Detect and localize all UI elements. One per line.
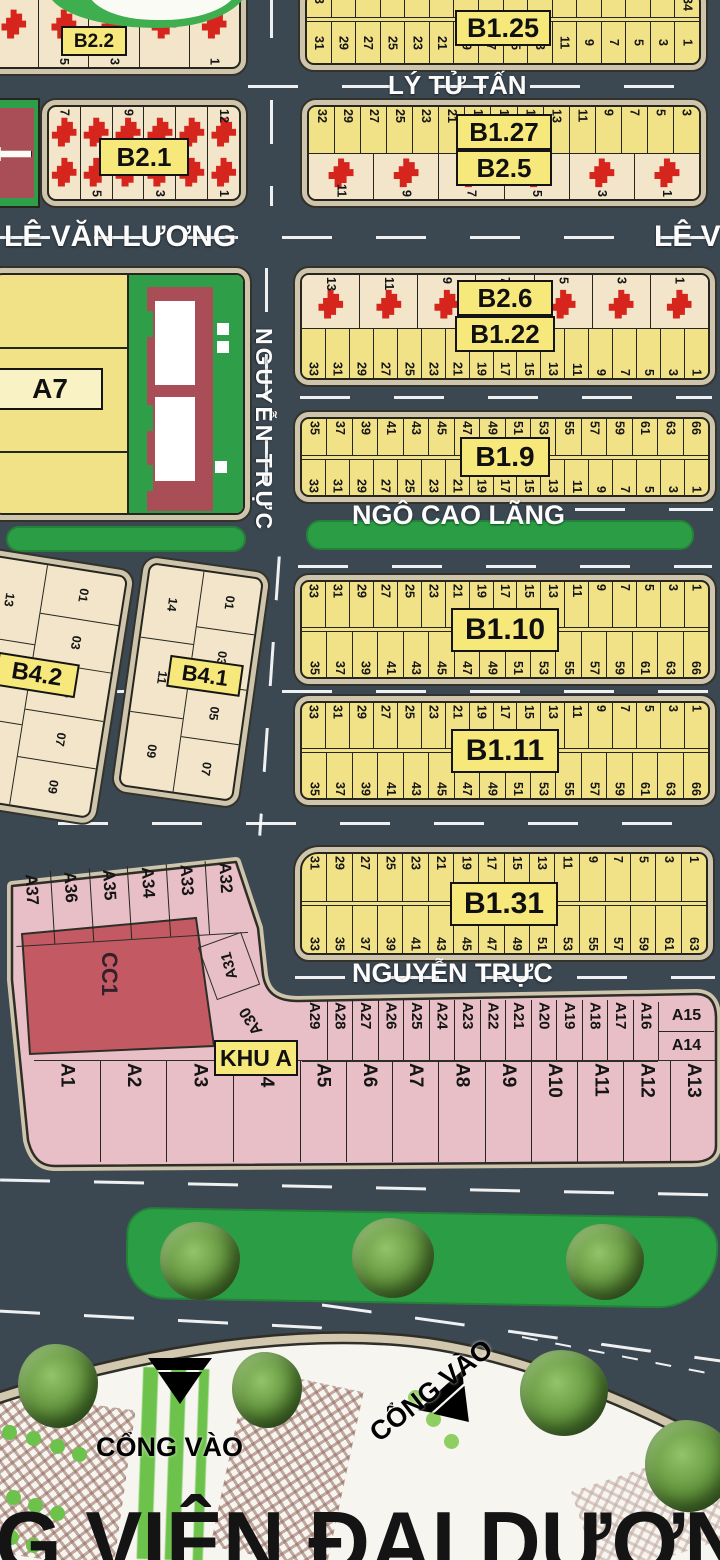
- lot-1: 1: [207, 153, 239, 199]
- lot-7: 7: [605, 854, 630, 901]
- lot-21: 21: [429, 22, 454, 63]
- lot-1: 1: [684, 329, 708, 378]
- lot-a5: A5: [300, 1061, 346, 1162]
- lot-35: 35: [302, 753, 326, 798]
- lot-39: 39: [352, 753, 377, 798]
- lot-1: 1: [684, 582, 708, 627]
- lot-35: 35: [326, 906, 351, 953]
- building-icon: [667, 290, 692, 319]
- block-label-a7: A7: [0, 368, 103, 410]
- street-ngo-cao-lang: NGÔ CAO LÃNG: [352, 500, 565, 531]
- lot-a7: A7: [392, 1061, 438, 1162]
- lot-9: 9: [588, 329, 612, 378]
- lot-41: 41: [402, 906, 427, 953]
- lot-9: 9: [576, 22, 601, 63]
- site-plan-map: 531 B2.2 334 312927252321191715131197531…: [0, 0, 720, 1560]
- lot-25: 25: [377, 854, 402, 901]
- lot-23: 23: [402, 854, 427, 901]
- lot-a22: A22: [480, 1000, 506, 1061]
- a7-white-square: [217, 341, 229, 353]
- lot-31: 31: [307, 22, 331, 63]
- lot: [380, 0, 405, 17]
- lot-7: 7: [612, 460, 636, 496]
- lot-55: 55: [555, 753, 580, 798]
- khu-a-side-row: A29A28A27A26A25A24A23A22A21A20A19A18A17A…: [302, 1000, 658, 1062]
- lot-25: 25: [397, 582, 421, 627]
- lot-23: 23: [404, 22, 429, 63]
- building-icon: [52, 158, 77, 187]
- lot-5: 5: [647, 107, 673, 153]
- lot-25: 25: [386, 107, 412, 153]
- lot-01: 01: [196, 572, 261, 634]
- block-b2-6-b1-22: 131197531 33312927252321191715131197531 …: [293, 266, 717, 387]
- lot-23: 23: [421, 582, 445, 627]
- lot-55: 55: [579, 906, 604, 953]
- lot: [0, 0, 38, 67]
- lot: [49, 153, 80, 199]
- lot-33: 33: [302, 906, 326, 953]
- street-ly-tu-tan: LÝ TỬ TẤN: [388, 70, 527, 101]
- lot-9: 9: [588, 460, 612, 496]
- lot-5: 5: [636, 703, 660, 748]
- lot-5: 5: [636, 329, 660, 378]
- lot-35: 35: [302, 632, 326, 677]
- lot-25: 25: [397, 460, 421, 496]
- lot-27: 27: [352, 854, 377, 901]
- a7-green-area: [127, 275, 243, 513]
- lot-a28: A28: [327, 1000, 353, 1061]
- lot-a21: A21: [505, 1000, 531, 1061]
- lot-61: 61: [632, 753, 657, 798]
- lot-25: 25: [397, 329, 421, 378]
- building-icon: [211, 158, 236, 187]
- lot-33: 33: [302, 582, 325, 627]
- block-label-b1-27: B1.27: [456, 114, 552, 150]
- khu-a-top-row: A37A36A35A34A33A32: [12, 859, 248, 947]
- lot-33: 33: [302, 460, 325, 496]
- lot-a26: A26: [378, 1000, 404, 1061]
- block-b1-11: 33312927252321191715131197531 3537394143…: [293, 694, 717, 807]
- lot-a11: A11: [577, 1061, 623, 1162]
- lot-41: 41: [377, 419, 402, 455]
- lot-3: 3: [673, 107, 699, 153]
- lot-59: 59: [630, 906, 655, 953]
- lot-43: 43: [403, 632, 428, 677]
- block-a7: A7: [0, 266, 252, 522]
- lot-3: 3: [655, 854, 680, 901]
- lot-61: 61: [655, 906, 680, 953]
- building-icon: [609, 290, 634, 319]
- lot-29: 29: [349, 460, 373, 496]
- lot-13: 13: [302, 275, 359, 328]
- lot-5: 5: [625, 22, 650, 63]
- block-label-b2-6: B2.6: [457, 280, 553, 316]
- lot-3: 3: [660, 703, 684, 748]
- building-icon: [1, 10, 26, 39]
- lot: [552, 0, 577, 17]
- lot-9: 9: [595, 107, 621, 153]
- lot-9: 9: [588, 582, 612, 627]
- block-label-b1-10: B1.10: [451, 608, 559, 652]
- lot-43: 43: [403, 753, 428, 798]
- building-icon: [551, 290, 576, 319]
- lot-a1: A1: [34, 1061, 100, 1162]
- lot-57: 57: [605, 906, 630, 953]
- block-b1-25: 334 312927252321191715131197531 B1.25: [298, 0, 708, 72]
- lot-a23: A23: [454, 1000, 480, 1061]
- lot-27: 27: [360, 107, 386, 153]
- lot-45: 45: [428, 632, 453, 677]
- lot-33: 33: [302, 703, 325, 748]
- lot-1: 1: [674, 22, 699, 63]
- building-icon: [376, 290, 401, 319]
- lot-3: 3: [569, 154, 634, 200]
- a7-green-notch: [141, 405, 153, 431]
- lot: [355, 0, 380, 17]
- lot-1: 1: [681, 854, 706, 901]
- lot-37: 37: [326, 419, 351, 455]
- street-le-van-luong: LÊ VĂN LƯƠNG: [4, 220, 236, 254]
- lot-29: 29: [349, 329, 373, 378]
- lot-9: 9: [579, 854, 604, 901]
- lot: [331, 0, 356, 17]
- lot-7: 7: [601, 22, 626, 63]
- lot-5: 5: [630, 854, 655, 901]
- lot-31: 31: [325, 582, 349, 627]
- lot-a32: A32: [205, 859, 248, 934]
- lot-31: 31: [302, 854, 326, 901]
- park-name: CÔNG VIÊN ĐẠI DƯƠNG: [0, 1492, 720, 1560]
- lot-27: 27: [355, 22, 380, 63]
- lot-27: 27: [373, 582, 397, 627]
- block-b1-27: 32292725232119171513119753 1197531 B1.27…: [300, 98, 708, 208]
- lot-63: 63: [657, 753, 682, 798]
- lot: [576, 0, 601, 17]
- lot-23: 23: [421, 329, 445, 378]
- block-label-b1-11: B1.11: [451, 729, 559, 773]
- lot-11: 11: [569, 107, 595, 153]
- lot-66: 66: [683, 419, 708, 455]
- lot-5: 5: [636, 582, 660, 627]
- block-green-building: [0, 98, 40, 208]
- lot-34: 34: [674, 0, 699, 17]
- block-b1-10: 33312927252321191715131197531 3537394143…: [293, 573, 717, 686]
- lot-57: 57: [581, 753, 606, 798]
- lot-23: 23: [421, 460, 445, 496]
- lot-a33: A33: [166, 861, 209, 936]
- lot-a12: A12: [623, 1061, 669, 1162]
- lot-7: 7: [612, 329, 636, 378]
- lot-a6: A6: [346, 1061, 392, 1162]
- lot-59: 59: [606, 419, 631, 455]
- lot-23: 23: [421, 703, 445, 748]
- lot-61: 61: [632, 419, 657, 455]
- lot-59: 59: [606, 753, 631, 798]
- park-shrub-dots: [2, 1425, 17, 1440]
- a7-green-notch: [141, 465, 153, 491]
- lot-57: 57: [581, 632, 606, 677]
- lot-a35: A35: [88, 866, 131, 941]
- lot-55: 55: [555, 419, 580, 455]
- lot-a18: A18: [582, 1000, 608, 1061]
- khu-a-bottom-row: A1A2A3A4A5A6A7A8A9A10A11A12A13: [34, 1060, 716, 1162]
- block-label-b1-31: B1.31: [450, 882, 558, 926]
- lot-a29: A29: [302, 1000, 327, 1061]
- lot-43: 43: [403, 419, 428, 455]
- lot-29: 29: [349, 582, 373, 627]
- lot-3: 3: [592, 275, 650, 328]
- lot-35: 35: [302, 419, 326, 455]
- lot-11: 11: [564, 703, 588, 748]
- lot-7: 7: [612, 582, 636, 627]
- lot-a8: A8: [438, 1061, 484, 1162]
- street-nguyen-truc-vertical: NGUYỄN TRỰC: [250, 328, 277, 532]
- building-icon: [654, 158, 679, 187]
- a7-building-court: [155, 301, 195, 385]
- lot: [625, 0, 650, 17]
- lot-a16: A16: [633, 1000, 659, 1061]
- building-icon: [589, 158, 614, 187]
- lot-a2: A2: [100, 1061, 167, 1162]
- lot-7: 7: [49, 107, 80, 153]
- lot-11: 11: [564, 329, 588, 378]
- lot-9: 9: [588, 703, 612, 748]
- lot-a25: A25: [403, 1000, 429, 1061]
- lot-a4: A4: [233, 1061, 300, 1162]
- entrance-arrow-icon: [148, 1358, 212, 1370]
- lot-29: 29: [334, 107, 360, 153]
- lot-41: 41: [377, 632, 402, 677]
- a7-green-notch: [141, 311, 153, 337]
- lot-11: 11: [564, 582, 588, 627]
- lot-1: 1: [684, 460, 708, 496]
- lot-11: 11: [359, 275, 417, 328]
- block-label-khu-a: KHU A: [214, 1040, 298, 1076]
- lot-11: 11: [309, 154, 373, 200]
- lot-61: 61: [632, 632, 657, 677]
- lot-a10: A10: [531, 1061, 577, 1162]
- block-label-cc1: CC1: [96, 952, 122, 1001]
- lot-37: 37: [326, 753, 351, 798]
- lot-27: 27: [373, 460, 397, 496]
- building-icon: [434, 290, 459, 319]
- lot-31: 31: [325, 703, 349, 748]
- lot-37: 37: [326, 632, 351, 677]
- lot: [650, 0, 675, 17]
- lot-66: 66: [683, 753, 708, 798]
- lot-39: 39: [352, 632, 377, 677]
- block-label-b1-25: B1.25: [455, 10, 551, 46]
- lot: [404, 0, 429, 17]
- lot-57: 57: [581, 419, 606, 455]
- lot-7: 7: [621, 107, 647, 153]
- lot-59: 59: [606, 632, 631, 677]
- lot-a13: A13: [670, 1061, 716, 1162]
- a7-white-square: [215, 461, 227, 473]
- lot-63: 63: [657, 632, 682, 677]
- lot-32: 32: [309, 107, 334, 153]
- lot-a9: A9: [485, 1061, 531, 1162]
- lot-39: 39: [377, 906, 402, 953]
- a7-building-court: [155, 397, 195, 481]
- lot-a37: A37: [12, 871, 54, 946]
- lot-29: 29: [326, 854, 351, 901]
- lot-1: 1: [650, 275, 708, 328]
- lot-55: 55: [555, 632, 580, 677]
- street-nguyen-truc-south: NGUYỄN TRỰC: [352, 958, 553, 989]
- lot-12: 12: [207, 107, 239, 153]
- lot-a15: A15: [659, 1002, 714, 1031]
- lot-07: 07: [173, 736, 239, 799]
- lot-a19: A19: [556, 1000, 582, 1061]
- block-b2-2: 531 B2.2: [0, 0, 248, 76]
- lot-9: 9: [373, 154, 438, 200]
- gate-label: CỔNG VÀO: [96, 1432, 243, 1463]
- street-le-van-luong-right: LÊ V: [654, 220, 720, 254]
- lot-3: 3: [660, 582, 684, 627]
- lot-37: 37: [352, 906, 377, 953]
- lot-1: 1: [684, 703, 708, 748]
- lot-63: 63: [681, 906, 706, 953]
- block-b1-9: 35373941434547495153555759616366 3331292…: [293, 410, 717, 504]
- lot-a17: A17: [607, 1000, 633, 1061]
- a7-white-square: [217, 323, 229, 335]
- lot-3: 3: [660, 329, 684, 378]
- lot-45: 45: [428, 419, 453, 455]
- lot-41: 41: [377, 753, 402, 798]
- lot-7: 7: [612, 703, 636, 748]
- lot-a24: A24: [429, 1000, 455, 1061]
- lot-63: 63: [657, 419, 682, 455]
- green-median: [6, 526, 246, 552]
- block-label-b1-22: B1.22: [455, 316, 555, 352]
- lot-39: 39: [352, 419, 377, 455]
- block-label-b2-1: B2.1: [99, 138, 189, 176]
- lot-25: 25: [380, 22, 405, 63]
- khu-a-corner-lots: A15A14: [658, 1002, 714, 1060]
- lot: [601, 0, 626, 17]
- lot-29: 29: [349, 703, 373, 748]
- block-b1-31: 312927252321191715131197531 333537394143…: [293, 845, 715, 962]
- lot-11: 11: [564, 460, 588, 496]
- lot-45: 45: [428, 753, 453, 798]
- lot-a20: A20: [531, 1000, 557, 1061]
- lot-a36: A36: [50, 868, 93, 943]
- lot-a14: A14: [659, 1031, 714, 1061]
- lot-a3: A3: [166, 1061, 233, 1162]
- building-icon: [52, 118, 77, 147]
- lot-11: 11: [552, 22, 577, 63]
- lot-25: 25: [397, 703, 421, 748]
- building-icon: [318, 290, 343, 319]
- lot-33: 33: [302, 329, 325, 378]
- lot-27: 27: [373, 329, 397, 378]
- lot-29: 29: [331, 22, 356, 63]
- lot-a27: A27: [352, 1000, 378, 1061]
- lot-3: 3: [650, 22, 675, 63]
- lot-a34: A34: [127, 864, 170, 939]
- building-icon: [394, 158, 419, 187]
- block-b2-1: 7912 531 B2.1: [40, 98, 248, 208]
- lot-23: 23: [412, 107, 438, 153]
- block-label-b2-2: B2.2: [61, 26, 127, 56]
- block-label-b1-9: B1.9: [460, 437, 550, 477]
- block-label-b2-5: B2.5: [456, 150, 552, 186]
- lot-31: 31: [325, 460, 349, 496]
- lot-3: 3: [660, 460, 684, 496]
- lot-5: 5: [636, 460, 660, 496]
- lot-27: 27: [373, 703, 397, 748]
- lot-3: 3: [307, 0, 331, 17]
- lot-1: 1: [634, 154, 699, 200]
- lot-66: 66: [683, 632, 708, 677]
- lot-31: 31: [325, 329, 349, 378]
- lot: [429, 0, 454, 17]
